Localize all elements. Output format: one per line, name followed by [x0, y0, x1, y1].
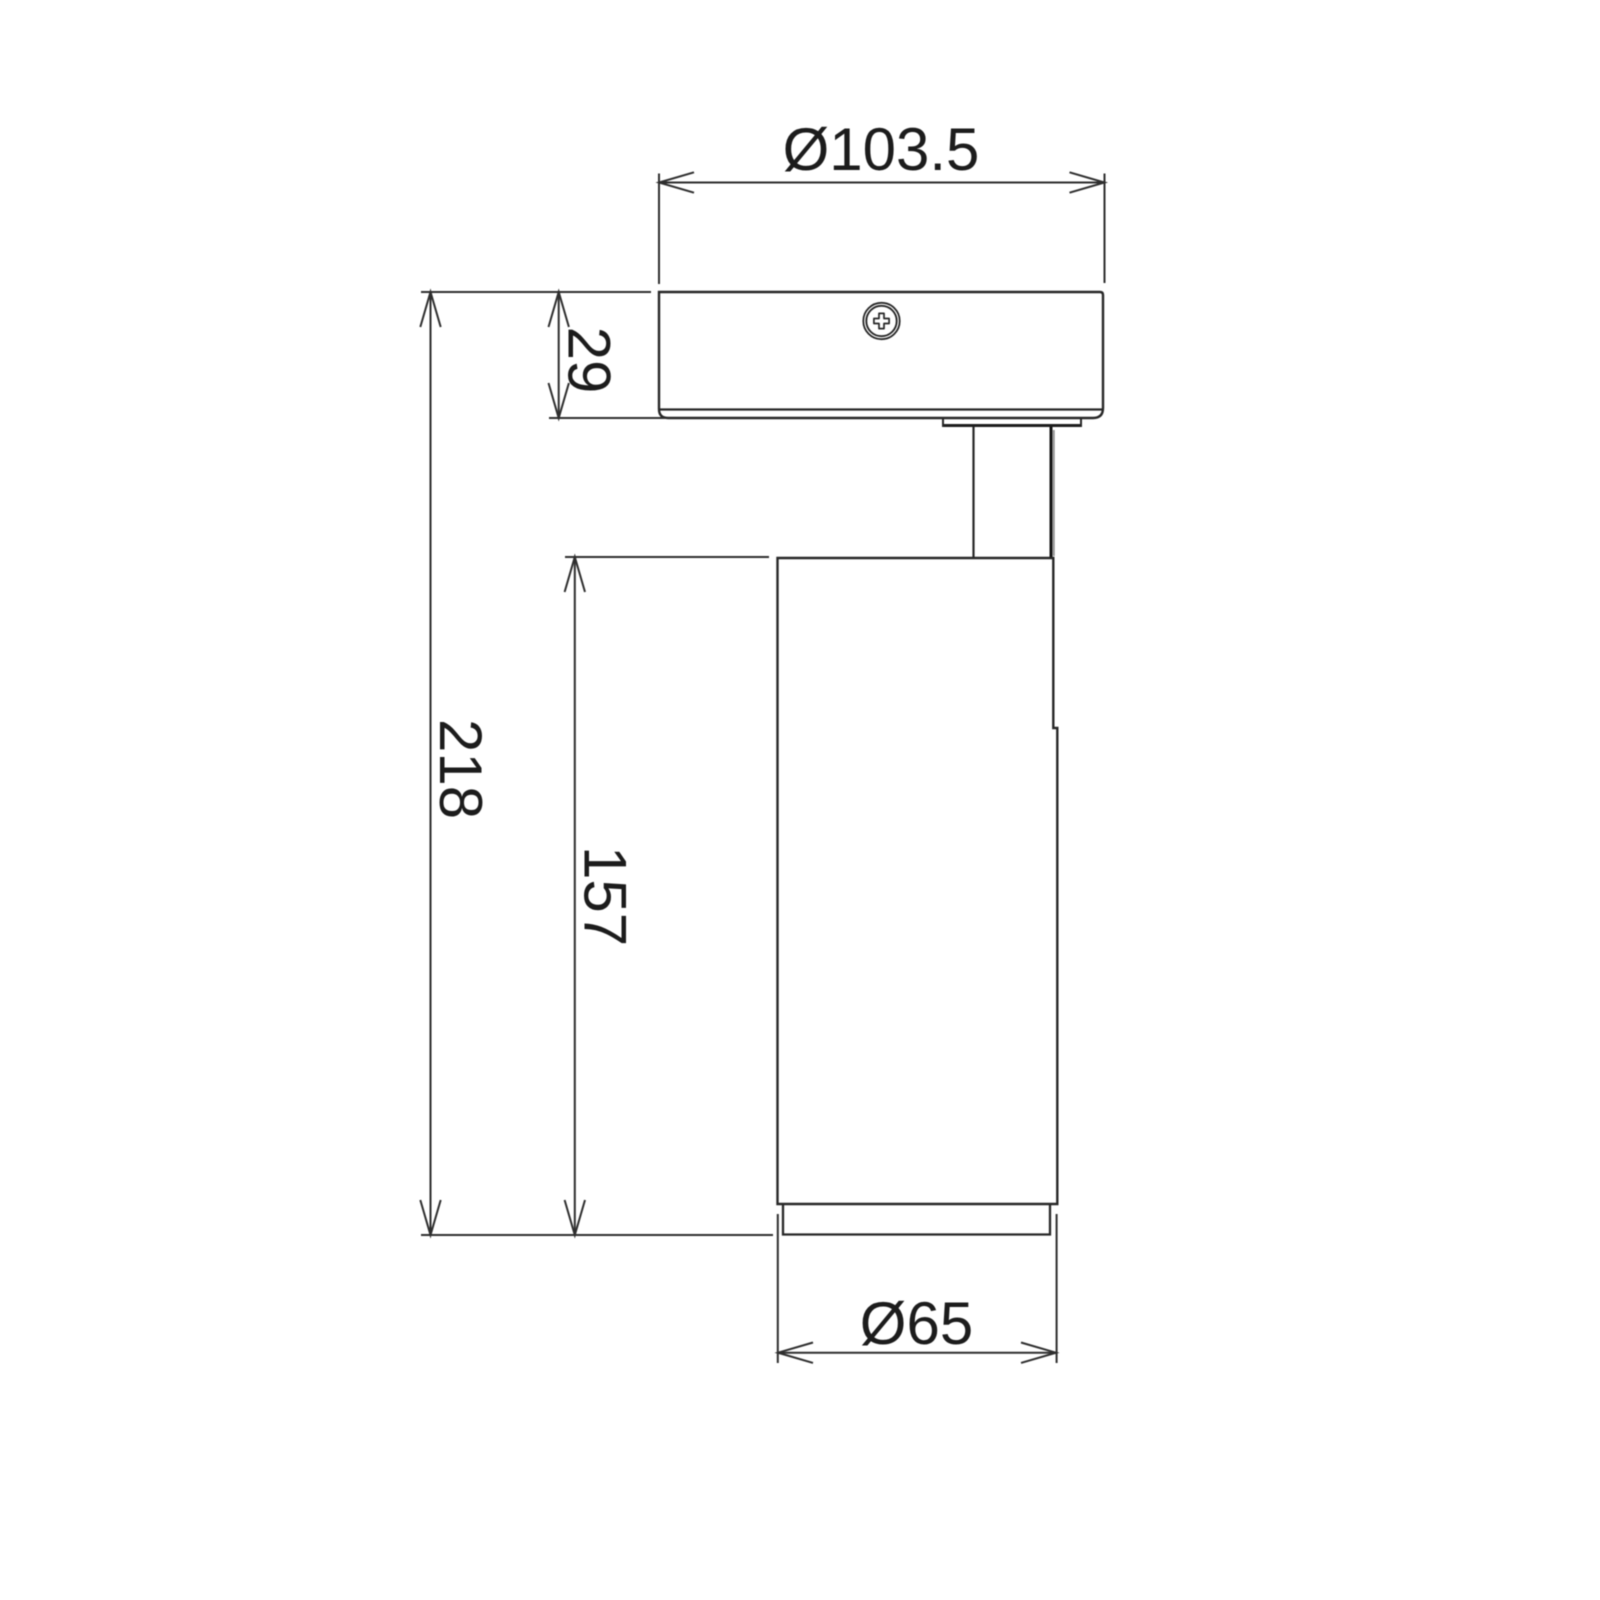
svg-text:157: 157 — [572, 846, 639, 946]
svg-text:Ø65: Ø65 — [860, 1290, 973, 1357]
svg-text:29: 29 — [556, 327, 623, 394]
svg-text:Ø103.5: Ø103.5 — [783, 116, 980, 183]
svg-text:218: 218 — [427, 719, 494, 819]
